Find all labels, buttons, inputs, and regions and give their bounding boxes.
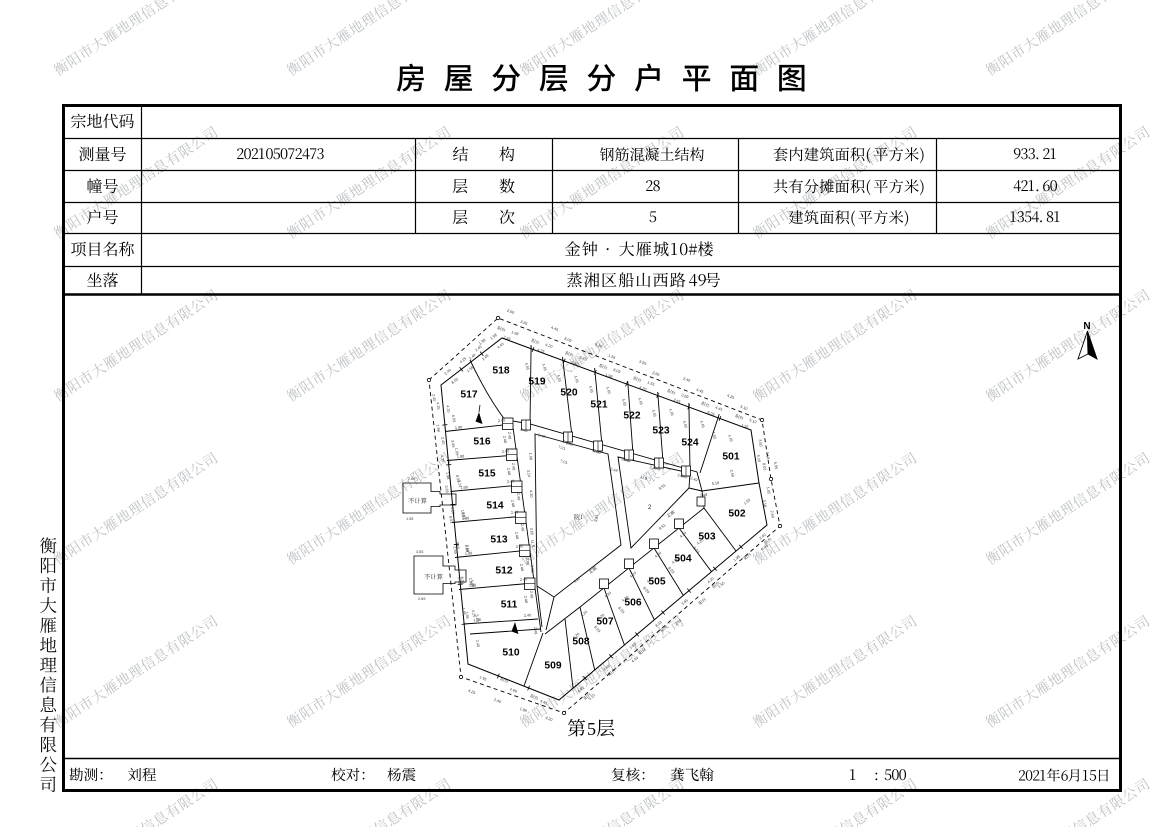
svg-text:515: 515 <box>478 469 495 480</box>
svg-text:524: 524 <box>681 438 698 449</box>
svg-text:523: 523 <box>652 426 669 437</box>
svg-text:1.55: 1.55 <box>406 517 413 521</box>
svg-text:511: 511 <box>501 600 518 611</box>
svg-text:5: 5 <box>587 719 596 739</box>
svg-text:2.40: 2.40 <box>507 479 515 484</box>
svg-text:512: 512 <box>495 566 512 577</box>
svg-text:2.40: 2.40 <box>520 577 528 582</box>
svg-text:513: 513 <box>490 535 507 546</box>
svg-text:1.98: 1.98 <box>528 453 533 461</box>
svg-text:2.40: 2.40 <box>524 613 532 618</box>
svg-text:1.98: 1.98 <box>457 454 465 459</box>
svg-text:510: 510 <box>502 648 519 659</box>
svg-text:502: 502 <box>728 509 745 520</box>
svg-text:2.40: 2.40 <box>511 510 519 515</box>
svg-text:3.65: 3.65 <box>529 528 534 536</box>
svg-text:2.48: 2.48 <box>525 558 530 566</box>
svg-text:2.40: 2.40 <box>502 449 510 454</box>
svg-text:521: 521 <box>590 400 607 411</box>
svg-text:519: 519 <box>528 377 545 388</box>
svg-text:2.48: 2.48 <box>533 627 538 635</box>
svg-text:522: 522 <box>623 411 640 422</box>
svg-text:509: 509 <box>544 661 561 672</box>
svg-text:516: 516 <box>473 437 490 448</box>
svg-text:520: 520 <box>560 388 577 399</box>
svg-text:2.40: 2.40 <box>498 418 506 423</box>
svg-text:2.40: 2.40 <box>516 544 524 549</box>
svg-text:4.20: 4.20 <box>529 490 534 498</box>
svg-text:2.48: 2.48 <box>520 524 525 532</box>
svg-text:N: N <box>1083 321 1090 332</box>
svg-text:501: 501 <box>722 452 739 463</box>
svg-text:2.48: 2.48 <box>516 493 521 501</box>
svg-text:514: 514 <box>486 501 503 512</box>
svg-text:2.48: 2.48 <box>507 432 512 440</box>
svg-text:3.55: 3.55 <box>416 550 423 554</box>
svg-text:2.48: 2.48 <box>511 463 516 471</box>
svg-text:518: 518 <box>492 366 509 377</box>
svg-text:2.69: 2.69 <box>418 597 425 601</box>
svg-text:2.48: 2.48 <box>529 591 534 599</box>
svg-text:2.69: 2.69 <box>408 477 415 481</box>
svg-text:517: 517 <box>460 390 477 401</box>
svg-text:8.03: 8.03 <box>530 565 535 573</box>
svg-text:1.98: 1.98 <box>473 618 481 623</box>
svg-text:1.98: 1.98 <box>455 425 463 430</box>
